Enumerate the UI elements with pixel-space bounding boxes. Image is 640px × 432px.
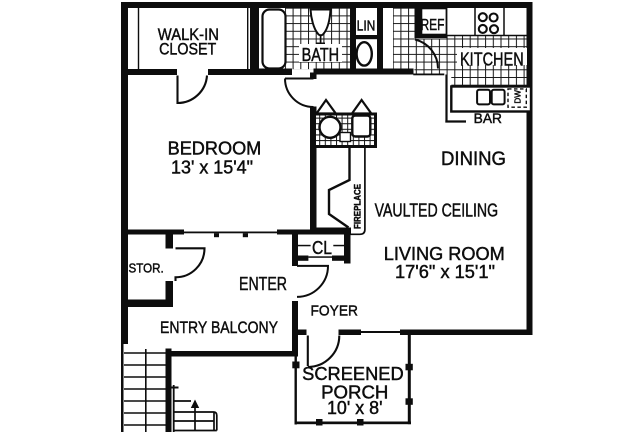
svg-text:SCREENED: SCREENED bbox=[302, 364, 404, 384]
svg-text:KITCHEN: KITCHEN bbox=[460, 50, 524, 70]
svg-text:REF: REF bbox=[421, 17, 445, 34]
svg-text:CL: CL bbox=[312, 238, 332, 258]
svg-text:BATH: BATH bbox=[302, 45, 340, 65]
svg-text:DINING: DINING bbox=[441, 148, 506, 170]
svg-text:LIN: LIN bbox=[357, 18, 376, 35]
svg-text:ENTER: ENTER bbox=[239, 274, 287, 294]
svg-text:FIREPLACE: FIREPLACE bbox=[352, 184, 362, 229]
svg-text:DW: DW bbox=[514, 90, 523, 104]
svg-text:13' x 15'4": 13' x 15'4" bbox=[171, 157, 253, 177]
svg-text:ENTRY BALCONY: ENTRY BALCONY bbox=[160, 318, 278, 337]
svg-text:STOR.: STOR. bbox=[129, 261, 164, 276]
svg-text:17'6" x 15'1": 17'6" x 15'1" bbox=[395, 262, 495, 282]
svg-text:FOYER: FOYER bbox=[311, 303, 359, 320]
svg-text:CLOSET: CLOSET bbox=[159, 39, 216, 58]
svg-text:BEDROOM: BEDROOM bbox=[168, 139, 262, 159]
svg-text:VAULTED CEILING: VAULTED CEILING bbox=[375, 201, 499, 221]
svg-text:10' x 8': 10' x 8' bbox=[327, 398, 383, 418]
svg-text:LIVING ROOM: LIVING ROOM bbox=[384, 244, 505, 264]
svg-text:BAR: BAR bbox=[474, 111, 503, 126]
